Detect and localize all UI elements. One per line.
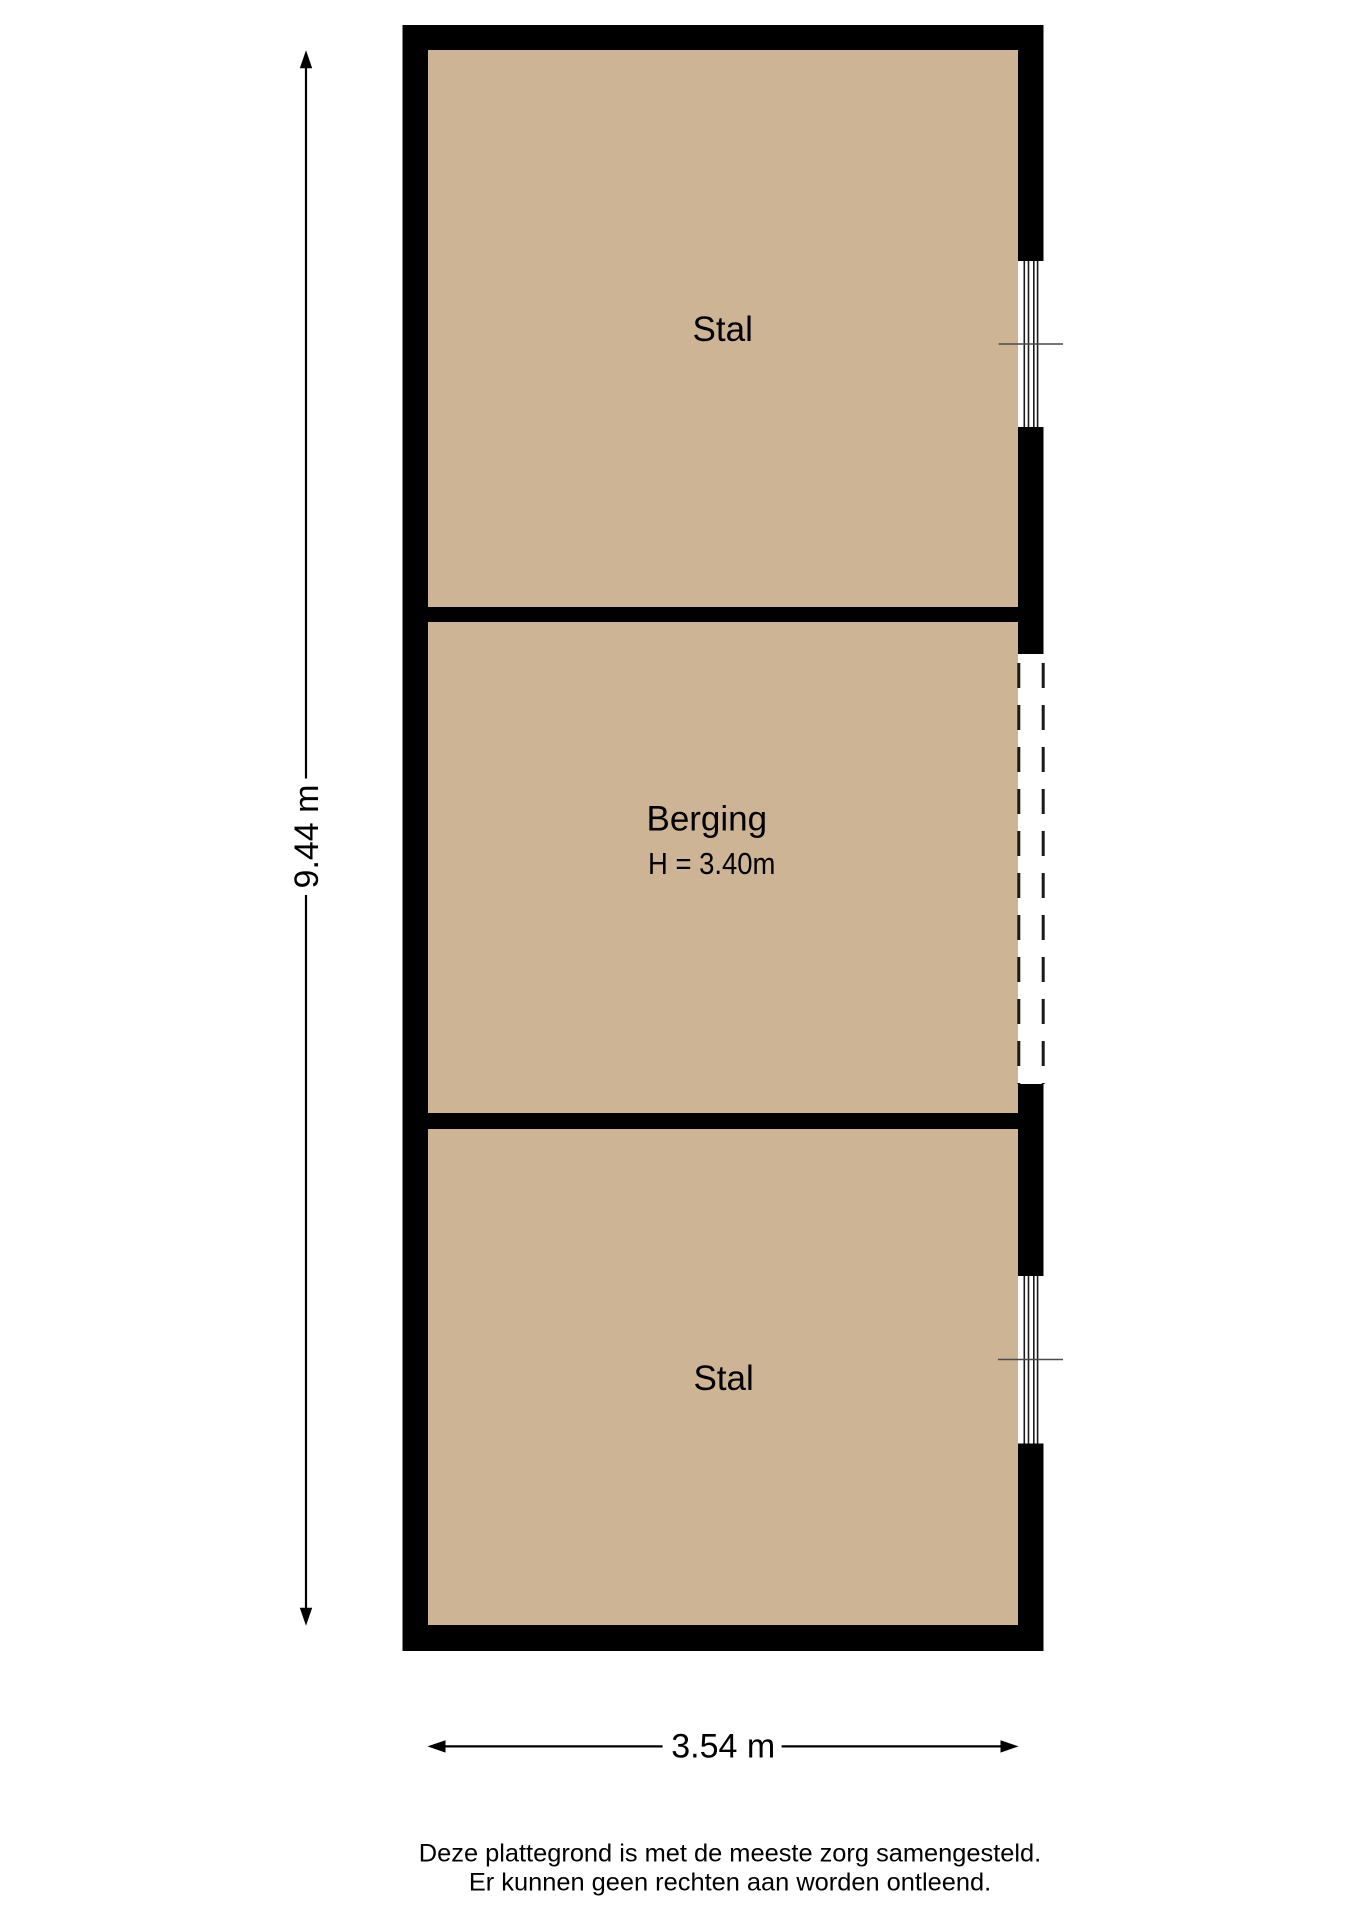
svg-text:H = 3.40m: H = 3.40m (648, 848, 775, 882)
svg-text:Stal: Stal (693, 1359, 753, 1398)
svg-text:Berging: Berging (646, 799, 767, 838)
svg-text:Stal: Stal (693, 310, 753, 349)
svg-text:3.54 m: 3.54 m (671, 1728, 775, 1766)
svg-text:9.44 m: 9.44 m (288, 785, 326, 889)
svg-text:Deze plattegrond is met de mee: Deze plattegrond is met de meeste zorg s… (419, 1840, 1041, 1868)
svg-text:Er kunnen geen rechten aan wor: Er kunnen geen rechten aan worden ontlee… (469, 1869, 991, 1897)
